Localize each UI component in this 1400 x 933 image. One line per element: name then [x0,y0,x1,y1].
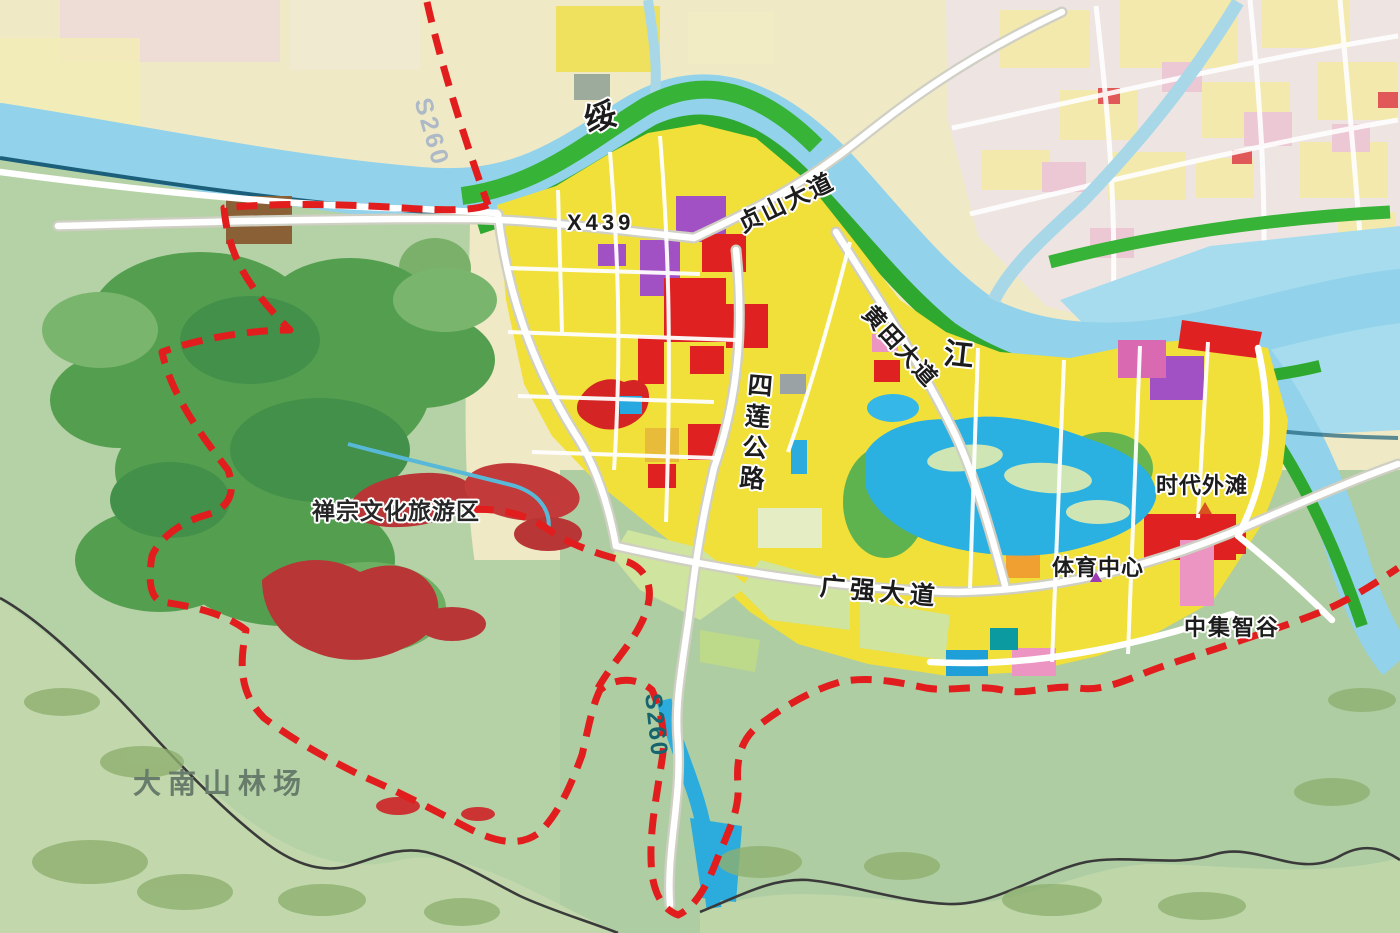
planning-map: 绥 江 S260 S260 X439 贞山大道 黄田大道 四莲公路 广强大道 禅… [0,0,1400,933]
map-image [0,0,1400,933]
